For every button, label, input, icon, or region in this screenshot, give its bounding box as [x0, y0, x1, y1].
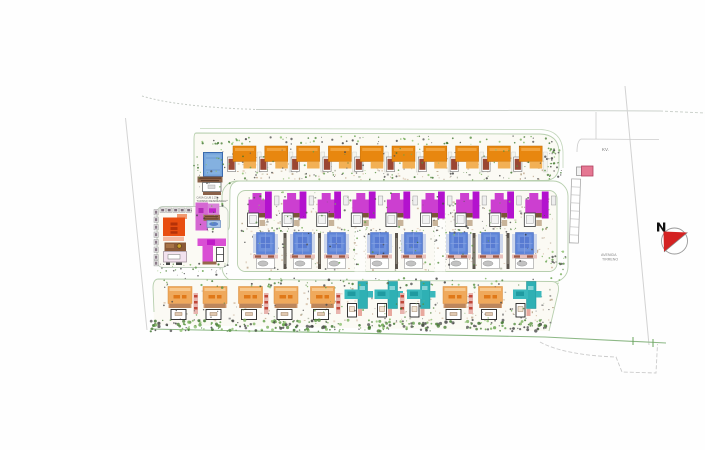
svg-text:KV.: KV.	[602, 147, 609, 152]
svg-text:TIRRENO: TIRRENO	[602, 258, 618, 262]
svg-text:TURISMO RESIDENCIAL: TURISMO RESIDENCIAL	[197, 199, 228, 203]
svg-text:AVENIDA: AVENIDA	[601, 253, 617, 257]
